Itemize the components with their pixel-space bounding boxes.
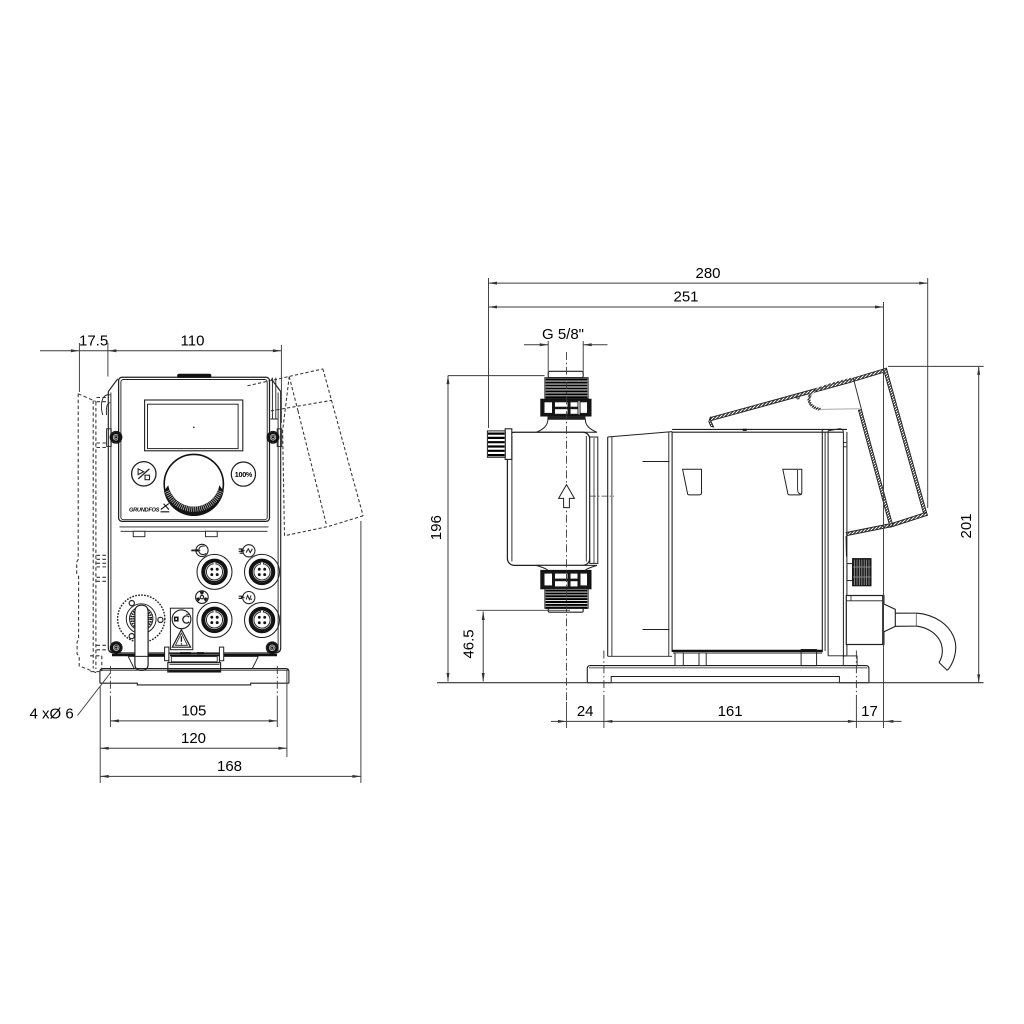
svg-text:GRUNDFOS: GRUNDFOS (129, 508, 160, 514)
svg-text:G 5/8": G 5/8" (542, 326, 584, 343)
svg-text:100%: 100% (235, 470, 253, 479)
svg-text:251: 251 (673, 289, 698, 306)
svg-text:120: 120 (181, 730, 206, 747)
svg-text:17: 17 (861, 703, 878, 720)
svg-text:280: 280 (695, 265, 720, 282)
svg-text:201: 201 (958, 513, 975, 538)
svg-text:105: 105 (181, 702, 206, 719)
svg-text:168: 168 (217, 758, 242, 775)
svg-text:17.5: 17.5 (79, 333, 108, 350)
svg-text:4 xØ 6: 4 xØ 6 (30, 705, 74, 722)
svg-text:24: 24 (577, 703, 594, 720)
svg-text:196: 196 (428, 515, 445, 540)
svg-text:46.5: 46.5 (461, 629, 478, 658)
svg-text:161: 161 (718, 703, 743, 720)
svg-text:110: 110 (181, 333, 205, 350)
